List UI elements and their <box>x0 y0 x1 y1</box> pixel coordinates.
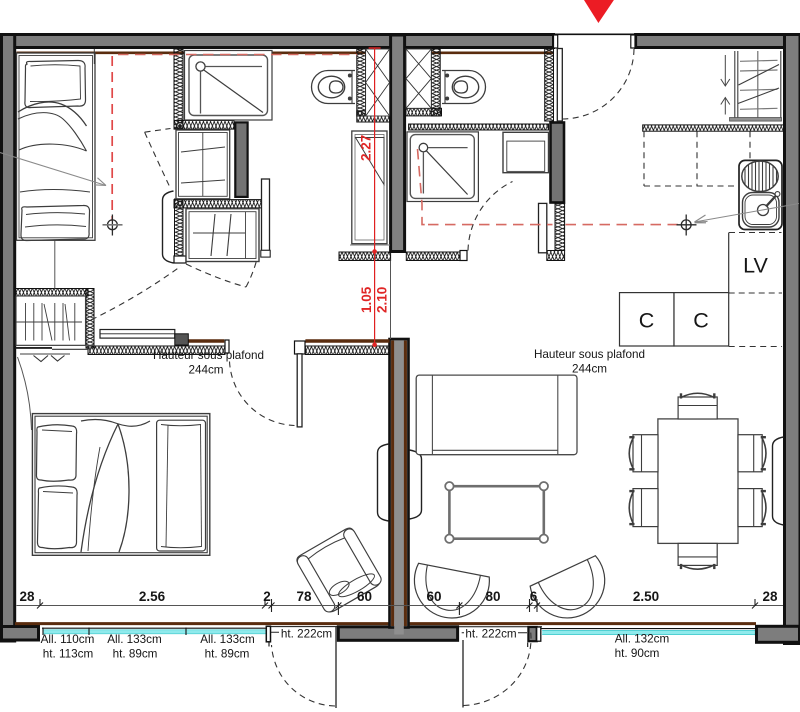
svg-text:Hauteur sous plafond: Hauteur sous plafond <box>534 348 645 361</box>
svg-text:ht. 89cm: ht. 89cm <box>113 648 158 661</box>
svg-text:All. 133cm: All. 133cm <box>200 633 255 646</box>
svg-text:Hauteur sous plafond: Hauteur sous plafond <box>153 349 264 362</box>
svg-text:C: C <box>693 309 709 333</box>
svg-text:80: 80 <box>485 589 500 604</box>
svg-text:244cm: 244cm <box>572 363 607 376</box>
svg-text:LV: LV <box>743 254 768 278</box>
svg-text:ht. 90cm: ht. 90cm <box>615 647 660 660</box>
svg-text:6: 6 <box>530 589 538 604</box>
svg-text:2.50: 2.50 <box>633 589 659 604</box>
svg-text:2.56: 2.56 <box>139 589 166 604</box>
svg-text:All. 110cm: All. 110cm <box>41 633 95 646</box>
svg-text:28: 28 <box>762 589 778 604</box>
svg-text:28: 28 <box>19 589 35 604</box>
svg-text:C: C <box>639 309 655 333</box>
svg-text:ht. 222cm: ht. 222cm <box>465 628 516 641</box>
svg-text:ht. 222cm: ht. 222cm <box>281 628 332 641</box>
svg-text:2.10: 2.10 <box>375 287 390 313</box>
svg-text:2.27: 2.27 <box>359 135 374 161</box>
svg-text:244cm: 244cm <box>188 364 223 377</box>
svg-text:ht. 89cm: ht. 89cm <box>205 648 250 661</box>
svg-text:60: 60 <box>426 589 441 604</box>
svg-text:All. 133cm: All. 133cm <box>107 633 162 646</box>
svg-text:2: 2 <box>263 589 271 604</box>
svg-text:78: 78 <box>296 589 312 604</box>
svg-text:60: 60 <box>357 589 372 604</box>
svg-text:1.05: 1.05 <box>359 286 374 313</box>
svg-text:ht. 113cm: ht. 113cm <box>43 648 93 661</box>
svg-text:All. 132cm: All. 132cm <box>615 633 670 646</box>
